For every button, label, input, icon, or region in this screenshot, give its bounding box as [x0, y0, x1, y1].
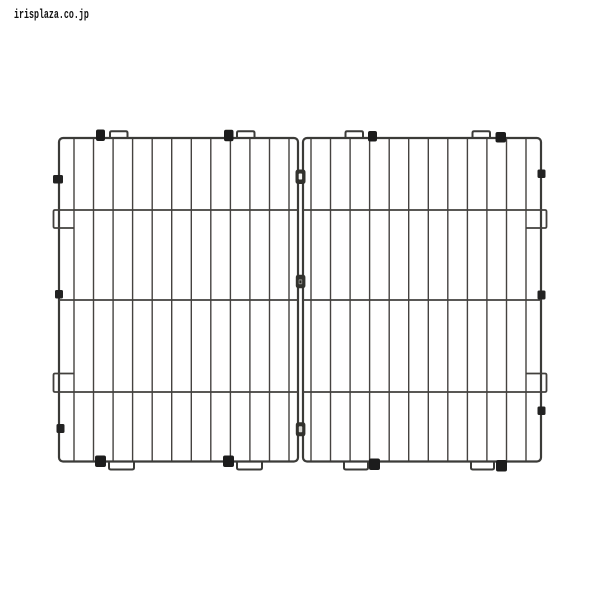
- svg-text:irisplaza.co.jp: irisplaza.co.jp: [14, 8, 89, 22]
